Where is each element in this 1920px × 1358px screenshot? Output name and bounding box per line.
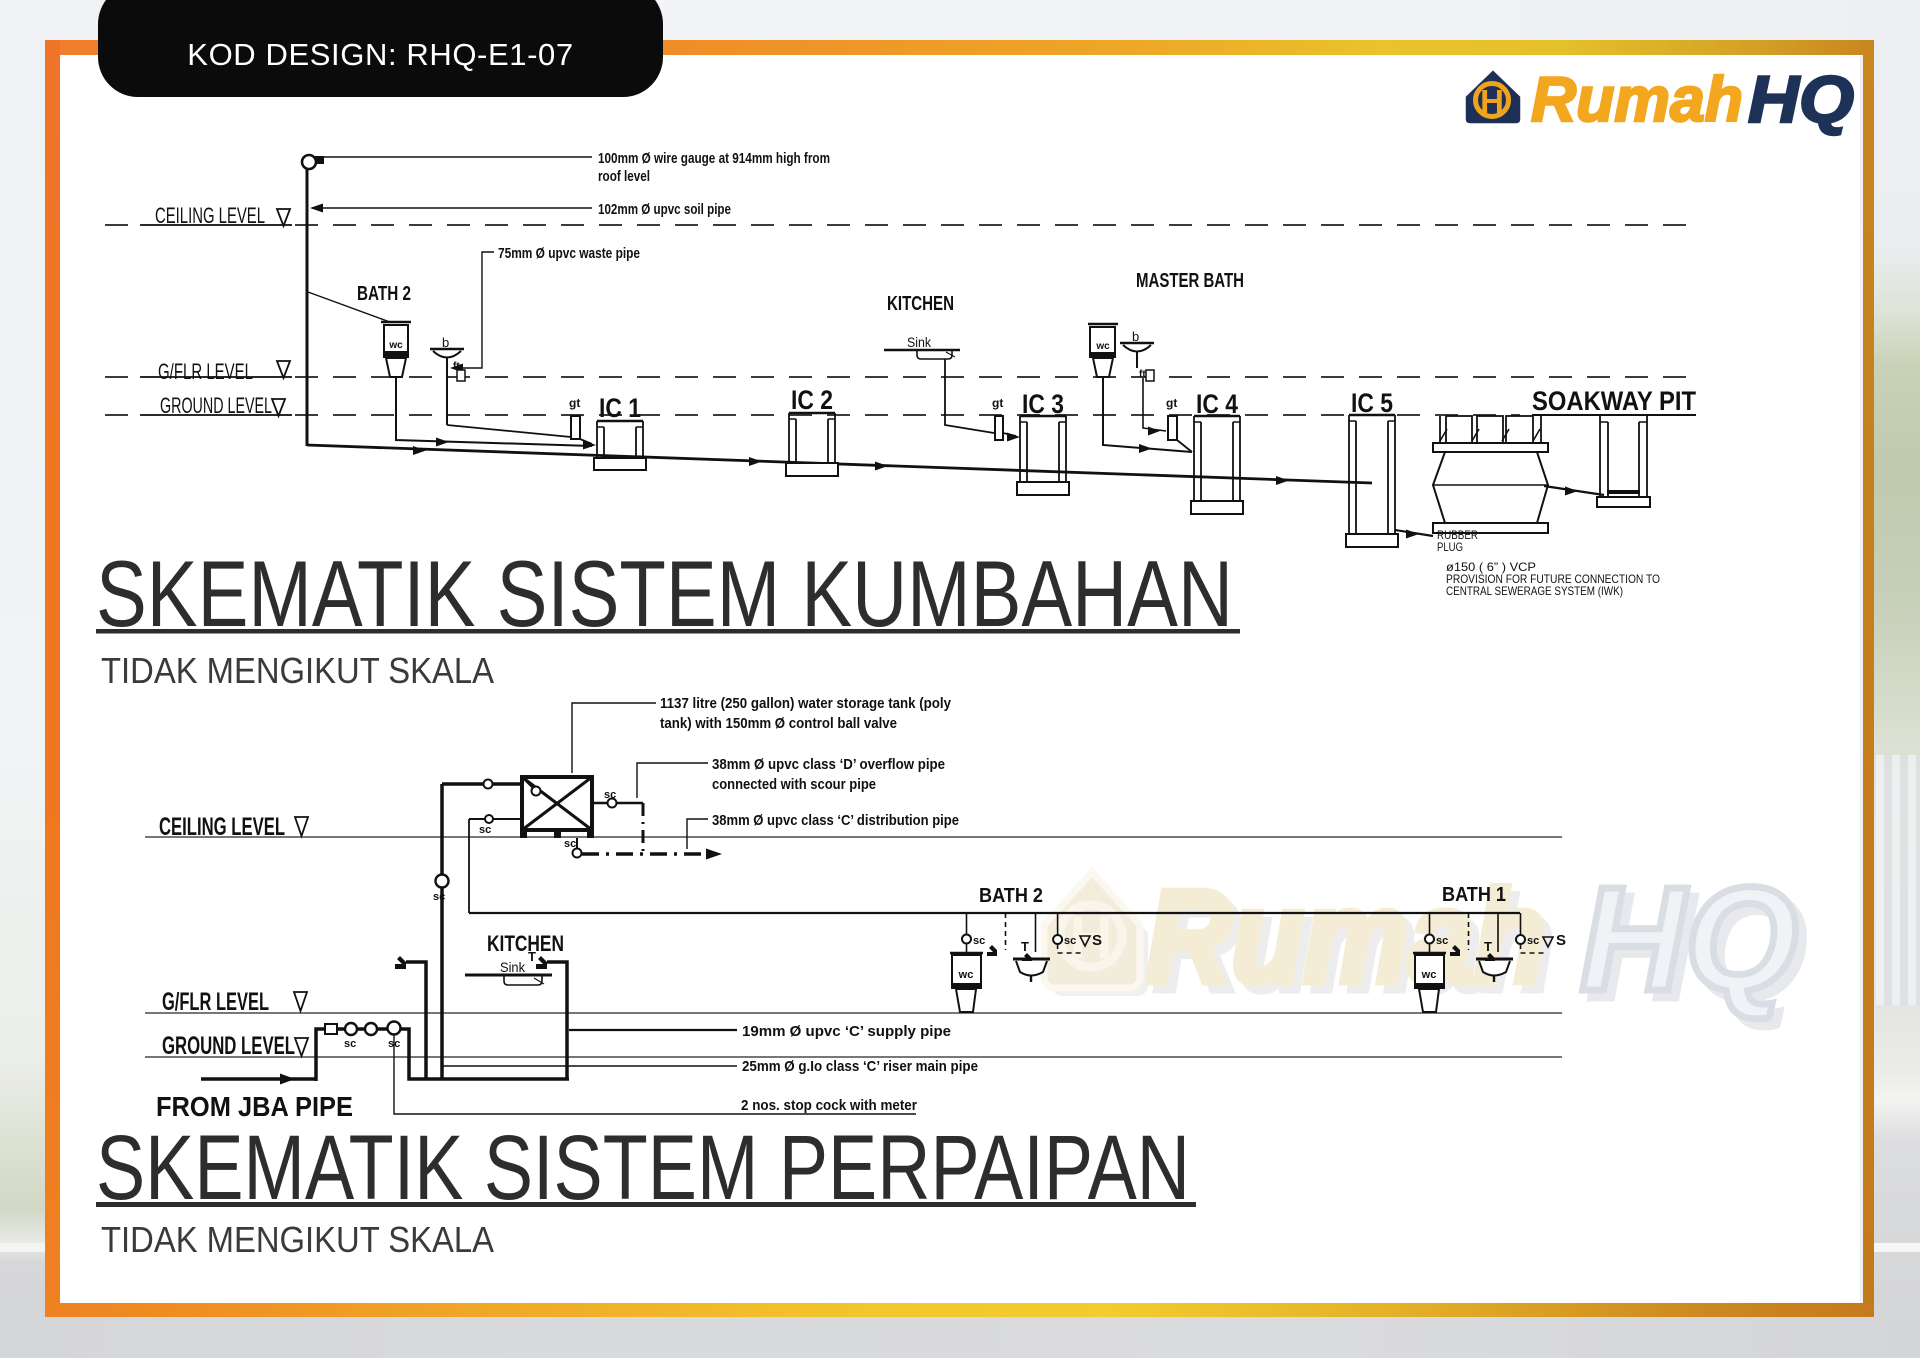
svg-text:wc: wc (388, 340, 403, 351)
svg-text:PLUG: PLUG (1437, 540, 1463, 554)
svg-text:H: H (1480, 83, 1504, 120)
svg-text:CEILING LEVEL: CEILING LEVEL (155, 203, 265, 228)
svg-text:roof level: roof level (598, 168, 650, 185)
svg-text:G/FLR LEVEL: G/FLR LEVEL (158, 359, 253, 384)
svg-text:wc: wc (1421, 969, 1437, 981)
svg-text:TIDAK MENGIKUT SKALA: TIDAK MENGIKUT SKALA (101, 650, 494, 691)
svg-text:BATH 1: BATH 1 (1442, 884, 1506, 906)
svg-text:sc: sc (479, 824, 491, 836)
svg-text:sc: sc (973, 935, 985, 947)
svg-text:GROUND LEVEL: GROUND LEVEL (162, 1032, 295, 1060)
svg-text:MASTER BATH: MASTER BATH (1136, 270, 1244, 292)
svg-text:wc: wc (1095, 341, 1110, 352)
svg-text:GROUND LEVEL: GROUND LEVEL (160, 393, 272, 418)
svg-text:wc: wc (958, 969, 974, 981)
svg-text:S: S (1092, 932, 1102, 949)
svg-text:Sink: Sink (907, 334, 932, 350)
svg-text:Sink: Sink (500, 959, 526, 975)
svg-text:2 nos. stop cock with meter: 2 nos. stop cock with meter (741, 1097, 917, 1114)
svg-text:gt: gt (569, 396, 580, 410)
svg-text:IC 4: IC 4 (1196, 389, 1238, 419)
svg-text:S: S (1556, 932, 1566, 949)
svg-text:HQ: HQ (1580, 857, 1798, 1022)
svg-text:IC 2: IC 2 (791, 385, 833, 415)
svg-text:G/FLR LEVEL: G/FLR LEVEL (162, 988, 269, 1016)
svg-text:IC 1: IC 1 (599, 393, 641, 423)
svg-text:75mm Ø upvc waste pipe: 75mm Ø upvc waste pipe (498, 245, 640, 262)
svg-text:SOAKWAY PIT: SOAKWAY PIT (1532, 386, 1696, 416)
svg-text:BATH 2: BATH 2 (979, 885, 1043, 907)
svg-text:T: T (1484, 939, 1492, 954)
svg-text:sc: sc (1527, 935, 1539, 947)
svg-text:CEILING LEVEL: CEILING LEVEL (159, 813, 285, 841)
svg-text:IC 3: IC 3 (1022, 389, 1064, 419)
svg-text:gt: gt (992, 396, 1003, 410)
svg-text:102mm Ø upvc soil pipe: 102mm Ø upvc soil pipe (598, 201, 731, 218)
svg-text:19mm Ø upvc ‘C’ supply pipe: 19mm Ø upvc ‘C’ supply pipe (742, 1023, 951, 1040)
svg-text:1137 litre (250 gallon) water: 1137 litre (250 gallon) water storage ta… (660, 695, 952, 712)
svg-text:TIDAK MENGIKUT SKALA: TIDAK MENGIKUT SKALA (101, 1219, 494, 1260)
svg-text:tank) with 150mm Ø control bal: tank) with 150mm Ø control ball valve (660, 715, 897, 732)
svg-text:CENTRAL SEWERAGE SYSTEM (IW: CENTRAL SEWERAGE SYSTEM (IWK) (1446, 584, 1623, 598)
svg-text:HQ: HQ (1748, 62, 1854, 136)
svg-text:100mm Ø wire gauge at 914mm hi: 100mm Ø wire gauge at 914mm high from (598, 150, 830, 167)
svg-text:Rumah: Rumah (1531, 65, 1743, 135)
svg-text:KITCHEN: KITCHEN (887, 293, 954, 315)
svg-text:IC 5: IC 5 (1351, 388, 1393, 418)
svg-text:T: T (528, 949, 536, 964)
svg-text:BATH 2: BATH 2 (357, 283, 411, 305)
svg-text:gt: gt (1166, 396, 1177, 410)
svg-text:T: T (1021, 939, 1029, 954)
svg-text:sc: sc (1436, 935, 1448, 947)
svg-text:sc: sc (1064, 935, 1076, 947)
svg-text:connected with scour pipe: connected with scour pipe (712, 776, 876, 793)
svg-text:KITCHEN: KITCHEN (487, 931, 564, 956)
svg-text:25mm Ø g.Io class ‘C’ riser ma: 25mm Ø g.Io class ‘C’ riser main pipe (742, 1058, 978, 1075)
svg-text:38mm Ø upvc class ‘D’ overflow: 38mm Ø upvc class ‘D’ overflow pipe (712, 756, 945, 773)
svg-text:38mm Ø upvc class ‘C’ distribu: 38mm Ø upvc class ‘C’ distribution pipe (712, 812, 959, 829)
svg-text:sc: sc (433, 891, 445, 903)
svg-text:sc: sc (344, 1038, 356, 1050)
